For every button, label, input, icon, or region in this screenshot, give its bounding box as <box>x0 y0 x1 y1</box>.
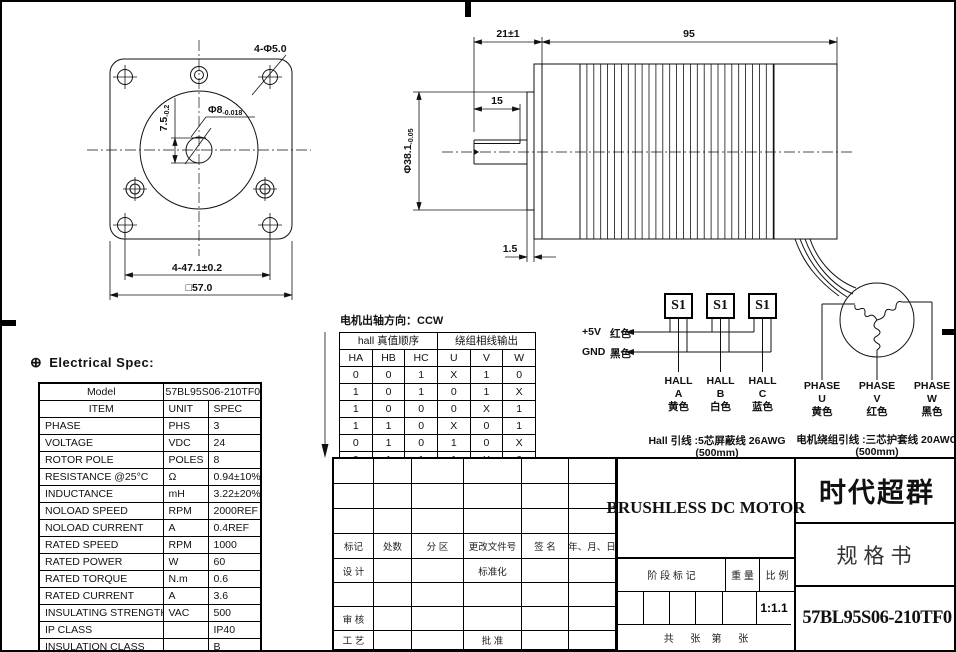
electrical-spec-header: ⊕Electrical Spec: <box>30 354 154 371</box>
winding-diagram: PHASEU黄色PHASEV红色PHASEW黑色 电机绕组引线 :三芯护套线 2… <box>797 280 956 465</box>
label-name: PHASE <box>904 380 956 393</box>
shaft-slash <box>185 128 211 164</box>
spec-cell: 1000 <box>208 537 261 554</box>
side-view-drawing: 21±1 95 15 Φ38.1-0.05 1.5 <box>397 12 859 302</box>
hall-col-header: HB <box>372 350 405 367</box>
titleblock-cell <box>569 631 616 650</box>
dim-flat-depth: 7.5-0.2 <box>158 105 171 132</box>
motor-body <box>542 64 837 239</box>
label-leader <box>191 117 206 137</box>
stage-cell <box>644 592 670 625</box>
titleblock-cell <box>522 559 569 583</box>
titleblock-cell: 标记 <box>334 534 374 559</box>
spec-cell: POLES <box>163 452 208 469</box>
titleblock-cell: 工 艺 <box>334 631 374 650</box>
col-unit: UNIT <box>163 401 208 418</box>
winding-lead-note: 电机绕组引线 :三芯护套线 20AWG <box>792 432 956 447</box>
hall-col-header: HA <box>340 350 373 367</box>
spec-cell: mH <box>163 486 208 503</box>
product-title: BRUSHLESS DC MOTOR <box>618 459 794 559</box>
label-color: 红色 <box>849 406 905 419</box>
dim-shaft-length: 21±1 <box>496 28 519 40</box>
titleblock-cell: 批 准 <box>464 631 522 650</box>
gnd-wire-color: 黑色 <box>610 346 631 361</box>
spec-cell: A <box>163 588 208 605</box>
hall-col-header: W <box>503 350 536 367</box>
hall-row: 1000X1 <box>340 401 536 418</box>
electrical-spec-table: Model 57BL95S06-210TF0 ITEM UNIT SPEC PH… <box>38 382 262 652</box>
titleblock-cell: 审 核 <box>334 607 374 631</box>
spec-cell: 2000REF <box>208 503 261 520</box>
spec-cell: RPM <box>163 503 208 520</box>
dim-bolt-spacing: 4-47.1±0.2 <box>172 262 222 274</box>
titleblock-cell <box>334 583 374 607</box>
spec-cell: INSULATION CLASS <box>39 639 163 652</box>
stage-cell <box>670 592 696 625</box>
spec-cell: 24 <box>208 435 261 452</box>
drawing-sheet: Φ8-0.018 7.5-0.2 4-Φ5.0 4-47.1±0.2 □57.0 <box>0 0 956 652</box>
titleblock-cell: 年、月、日 <box>569 534 616 559</box>
titleblock-cell <box>412 459 464 484</box>
part-number: 57BL95S06-210TF0 <box>796 587 956 650</box>
titleblock-cell: 处数 <box>374 534 412 559</box>
hall-cell: 0 <box>340 367 373 384</box>
hall-cell: 1 <box>503 418 536 435</box>
spec-cell: INDUCTANCE <box>39 486 163 503</box>
dim-boss-height: 1.5 <box>503 243 518 255</box>
titleblock-cell <box>374 484 412 509</box>
dim-mount-holes: 4-Φ5.0 <box>254 43 287 55</box>
spec-cell: PHS <box>163 418 208 435</box>
hall-ic-2: S1 <box>713 298 728 313</box>
company-name: 时代超群 <box>796 459 956 524</box>
spec-cell: VDC <box>163 435 208 452</box>
hall-cell: 1 <box>372 435 405 452</box>
hall-cell: 1 <box>437 435 470 452</box>
spec-cell: NOLOAD CURRENT <box>39 520 163 537</box>
hall-col-header: HC <box>405 350 438 367</box>
front-view-drawing: Φ8-0.018 7.5-0.2 4-Φ5.0 4-47.1±0.2 □57.0 <box>87 40 322 310</box>
spec-cell: 0.94±10% <box>208 469 261 486</box>
titleblock-cell <box>569 559 616 583</box>
hall-cell: 1 <box>340 384 373 401</box>
hall-cell: 0 <box>503 367 536 384</box>
titleblock-cell <box>374 509 412 534</box>
vcc-label: +5V <box>582 326 601 338</box>
titleblock-cell: 签 名 <box>522 534 569 559</box>
spec-cell: RATED POWER <box>39 554 163 571</box>
label-color: 黄色 <box>794 406 850 419</box>
hall-cell: 0 <box>470 418 503 435</box>
titleblock-cell <box>464 484 522 509</box>
hall-cell: 0 <box>372 401 405 418</box>
hall-cell: 0 <box>372 367 405 384</box>
spec-cell: PHASE <box>39 418 163 435</box>
spec-row: INSULATION CLASSB <box>39 639 261 652</box>
spec-row: INSULATING STRENGTHVAC500 <box>39 605 261 622</box>
spec-row: INDUCTANCEmH3.22±20% <box>39 486 261 503</box>
titleblock-cell <box>464 459 522 484</box>
hall-wiring-diagram: S1 S1 S1 +5V 红色 GND 黑色 HALLA黄色HALLB白色HAL… <box>577 287 812 467</box>
mounting-holes <box>118 70 278 233</box>
hall-truth-table: hall 真值顺序 绕组相线输出 HAHBHCUVW 001X1010101X1… <box>339 332 536 469</box>
model-label: Model <box>39 383 163 401</box>
hall-cell: 1 <box>503 401 536 418</box>
spec-cell: Ω <box>163 469 208 486</box>
hall-ic-3: S1 <box>755 298 770 313</box>
col-item: ITEM <box>39 401 163 418</box>
hall-cell: 0 <box>372 384 405 401</box>
hall-cell: X <box>470 401 503 418</box>
titleblock-cell <box>569 607 616 631</box>
spec-header-row: ITEM UNIT SPEC <box>39 401 261 418</box>
spec-cell: RATED TORQUE <box>39 571 163 588</box>
phase-labels-item: PHASEW黑色 <box>904 380 956 419</box>
flange-plate <box>534 64 542 239</box>
tapped-holes <box>126 67 274 199</box>
spec-cell: 0.4REF <box>208 520 261 537</box>
spec-cell: 60 <box>208 554 261 571</box>
titleblock-cell <box>412 484 464 509</box>
spec-cell: B <box>208 639 261 652</box>
label-id: W <box>904 393 956 406</box>
spec-cell: VOLTAGE <box>39 435 163 452</box>
label-name: PHASE <box>794 380 850 393</box>
title-block-right: 时代超群 规格书 57BL95S06-210TF0 <box>794 459 956 650</box>
hall-cell: X <box>437 418 470 435</box>
model-row: Model 57BL95S06-210TF0 <box>39 383 261 401</box>
spec-row: RESISTANCE @25°CΩ0.94±10% <box>39 469 261 486</box>
hall-row: 10101X <box>340 384 536 401</box>
model-value: 57BL95S06-210TF0 <box>163 383 261 401</box>
hall-cell: 1 <box>470 384 503 401</box>
phase-labels-item: PHASEV红色 <box>849 380 905 419</box>
body-ribs <box>580 64 773 239</box>
label-name: PHASE <box>849 380 905 393</box>
spec-cell: RATED SPEED <box>39 537 163 554</box>
titleblock-cell <box>464 607 522 631</box>
titleblock-cell: 分 区 <box>412 534 464 559</box>
spec-row: NOLOAD CURRENTA0.4REF <box>39 520 261 537</box>
dim-pilot-dia: Φ38.1-0.05 <box>402 128 415 173</box>
titleblock-cell <box>374 631 412 650</box>
hall-ic-1: S1 <box>671 298 686 313</box>
electrical-spec-title: Electrical Spec: <box>49 355 154 370</box>
hall-col-header: U <box>437 350 470 367</box>
spec-row: RATED TORQUEN.m0.6 <box>39 571 261 588</box>
shaft-direction-note: 电机出轴方向：CCW <box>340 312 443 328</box>
document-type: 规格书 <box>796 524 956 587</box>
spec-cell: 3 <box>208 418 261 435</box>
revision-signature-grid: 标记处数分 区更改文件号签 名年、月、日设 计标准化审 核工 艺批 准 <box>334 459 616 650</box>
dim-flat-length: 15 <box>491 95 503 107</box>
hall-cell: 0 <box>405 401 438 418</box>
spec-cell: 3.6 <box>208 588 261 605</box>
gnd-label: GND <box>582 346 605 358</box>
scale-label: 比 例 <box>760 557 794 592</box>
hall-cell: 1 <box>372 418 405 435</box>
spec-row: IP CLASSIP40 <box>39 622 261 639</box>
hall-cell: 0 <box>437 401 470 418</box>
spec-cell: A <box>163 520 208 537</box>
spec-cell: RESISTANCE @25°C <box>39 469 163 486</box>
titleblock-cell <box>374 607 412 631</box>
hall-cell: X <box>503 384 536 401</box>
hall-row: 01010X <box>340 435 536 452</box>
hall-cell: 0 <box>405 418 438 435</box>
titleblock-cell <box>412 607 464 631</box>
titleblock-cell: 更改文件号 <box>464 534 522 559</box>
stage-cell <box>618 592 644 625</box>
hall-columns-row: HAHBHCUVW <box>340 350 536 367</box>
hall-cell: 0 <box>405 435 438 452</box>
spec-row: RATED POWERW60 <box>39 554 261 571</box>
spec-cell <box>163 639 208 652</box>
label-color: 黑色 <box>904 406 956 419</box>
spec-cell: VAC <box>163 605 208 622</box>
titleblock-cell <box>412 583 464 607</box>
hall-cell: 0 <box>437 384 470 401</box>
titleblock-cell <box>374 459 412 484</box>
pilot-boss <box>527 92 534 210</box>
stage-cell <box>696 592 723 625</box>
spec-row: PHASEPHS3 <box>39 418 261 435</box>
hall-lead-note: Hall 引线 :5芯屏蔽线 26AWG <box>632 433 802 448</box>
stage-mark-label: 阶 段 标 记 <box>618 557 726 592</box>
titleblock-cell <box>464 583 522 607</box>
spec-cell <box>163 622 208 639</box>
spec-cell: N.m <box>163 571 208 588</box>
hall-header-right: 绕组相线输出 <box>437 333 535 350</box>
hall-cols-labels-item: HALLC蓝色 <box>735 375 791 414</box>
dim-shaft-dia: Φ8-0.018 <box>208 104 242 117</box>
titleblock-cell <box>522 484 569 509</box>
titleblock-cell <box>334 459 374 484</box>
hall-cell: 1 <box>470 367 503 384</box>
spec-row: ROTOR POLEPOLES8 <box>39 452 261 469</box>
title-block-middle: BRUSHLESS DC MOTOR 阶 段 标 记 重 量 比 例 1:1.1… <box>616 459 794 650</box>
titleblock-cell <box>334 509 374 534</box>
hall-cell: 0 <box>340 435 373 452</box>
titleblock-cell: 标准化 <box>464 559 522 583</box>
spec-cell: 0.6 <box>208 571 261 588</box>
titleblock-cell: 设 计 <box>334 559 374 583</box>
hall-row: 001X10 <box>340 367 536 384</box>
center-drill <box>474 149 479 155</box>
spec-cell: 8 <box>208 452 261 469</box>
titleblock-cell <box>374 559 412 583</box>
titleblock-cell <box>522 583 569 607</box>
hall-cell: 1 <box>340 418 373 435</box>
weight-value <box>723 592 757 625</box>
weight-label: 重 量 <box>726 557 760 592</box>
globe-icon: ⊕ <box>30 354 42 370</box>
spec-row: VOLTAGEVDC24 <box>39 435 261 452</box>
label-color: 蓝色 <box>735 401 791 414</box>
hall-cell: X <box>503 435 536 452</box>
flange-outline <box>110 59 292 239</box>
hall-header-left: hall 真值顺序 <box>340 333 438 350</box>
titleblock-cell <box>522 631 569 650</box>
spec-cell: RATED CURRENT <box>39 588 163 605</box>
spec-cell: RPM <box>163 537 208 554</box>
titleblock-cell <box>569 459 616 484</box>
titleblock-cell <box>334 484 374 509</box>
spec-cell: IP40 <box>208 622 261 639</box>
label-name: HALL <box>735 375 791 388</box>
spec-row: RATED SPEEDRPM1000 <box>39 537 261 554</box>
label-id: V <box>849 393 905 406</box>
sheet-count: 共 张 第 张 <box>618 625 794 650</box>
dim-body-length: 95 <box>683 28 695 40</box>
spec-cell: W <box>163 554 208 571</box>
hall-header-row: hall 真值顺序 绕组相线输出 <box>340 333 536 350</box>
dim-square: □57.0 <box>186 282 213 294</box>
titleblock-cell <box>412 559 464 583</box>
vcc-wire-color: 红色 <box>610 326 631 341</box>
spec-cell: INSULATING STRENGTH <box>39 605 163 622</box>
titleblock-cell <box>569 583 616 607</box>
spec-row: NOLOAD SPEEDRPM2000REF <box>39 503 261 520</box>
pointer-arrow <box>318 332 332 460</box>
scale-value: 1:1.1 <box>757 592 791 625</box>
hall-cell: 0 <box>470 435 503 452</box>
holes-leader <box>252 55 286 95</box>
phase-labels-item: PHASEU黄色 <box>794 380 850 419</box>
hall-cell: 1 <box>405 384 438 401</box>
titleblock-cell <box>464 509 522 534</box>
titleblock-cell <box>412 631 464 650</box>
titleblock-cell <box>412 509 464 534</box>
col-spec: SPEC <box>208 401 261 418</box>
wye-coils <box>855 302 902 358</box>
spec-cell: NOLOAD SPEED <box>39 503 163 520</box>
titleblock-cell <box>522 607 569 631</box>
hall-cell: 1 <box>405 367 438 384</box>
frame-mark-left <box>2 320 16 326</box>
titleblock-cell <box>522 459 569 484</box>
spec-cell: 500 <box>208 605 261 622</box>
spec-cell: 3.22±20% <box>208 486 261 503</box>
hall-col-header: V <box>470 350 503 367</box>
spec-cell: IP CLASS <box>39 622 163 639</box>
hall-cell: X <box>437 367 470 384</box>
spec-cell: ROTOR POLE <box>39 452 163 469</box>
label-id: C <box>735 388 791 401</box>
label-id: U <box>794 393 850 406</box>
title-block: 标记处数分 区更改文件号签 名年、月、日设 计标准化审 核工 艺批 准 BRUS… <box>332 457 956 652</box>
titleblock-cell <box>374 583 412 607</box>
spec-row: RATED CURRENTA3.6 <box>39 588 261 605</box>
hall-cell: 1 <box>340 401 373 418</box>
titleblock-cell <box>522 509 569 534</box>
hall-row: 110X01 <box>340 418 536 435</box>
